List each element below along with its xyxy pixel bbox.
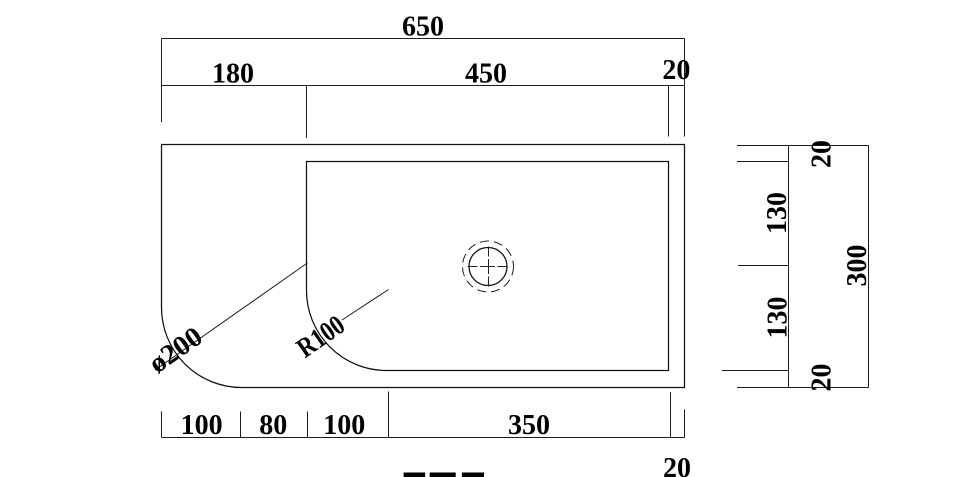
svg-text:130: 130 bbox=[762, 192, 793, 234]
svg-text:20: 20 bbox=[807, 140, 838, 168]
svg-text:180: 180 bbox=[212, 59, 254, 90]
svg-text:100: 100 bbox=[323, 410, 365, 441]
svg-text:350: 350 bbox=[508, 410, 550, 441]
svg-text:20: 20 bbox=[807, 364, 838, 392]
svg-text:R100: R100 bbox=[291, 310, 351, 365]
svg-text:100: 100 bbox=[181, 410, 223, 441]
svg-text:20: 20 bbox=[663, 453, 691, 477]
svg-text:80: 80 bbox=[259, 410, 287, 441]
svg-text:130: 130 bbox=[763, 297, 794, 339]
svg-text:300: 300 bbox=[842, 245, 873, 287]
svg-text:ø200: ø200 bbox=[143, 321, 208, 380]
svg-text:650: 650 bbox=[402, 12, 444, 43]
svg-text:20: 20 bbox=[662, 55, 690, 86]
svg-text:450: 450 bbox=[465, 59, 507, 90]
